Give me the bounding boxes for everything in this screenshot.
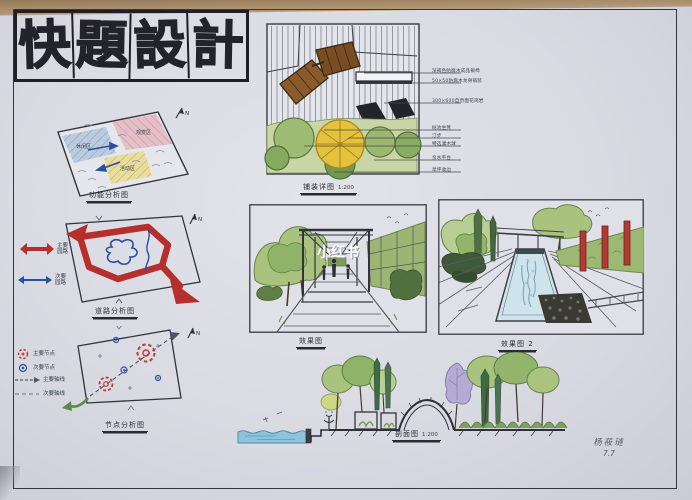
view-corridor-arrow — [62, 398, 88, 411]
title-block: 快 題 設 計 — [14, 10, 249, 82]
legend-secondary-road: 次要园路 — [18, 274, 68, 287]
svg-text:观赏区: 观赏区 — [136, 129, 151, 136]
perspective-one-caption: 效果图 — [296, 336, 326, 348]
photo-corner-shadow — [0, 466, 20, 500]
secondary-road-arrow-icon — [18, 275, 52, 285]
ground-lines — [329, 430, 565, 436]
annotation-label: 50×50防腐木龙骨铺装 — [432, 79, 482, 84]
secondary-axis-icon — [14, 390, 40, 398]
bench-plank — [356, 72, 412, 84]
main-node-markers — [100, 345, 155, 391]
signature: 杨莜琏 7.7 — [576, 436, 642, 458]
main-axis-icon — [14, 376, 40, 384]
dragonfly-marks — [263, 412, 282, 422]
annotation-label: 深褐色防腐木成品躺椅 — [432, 69, 480, 74]
annotation-label: 300×600自然面花岗岩 — [432, 99, 484, 104]
north-arrow-icon: N — [176, 108, 189, 118]
right-tree-group — [459, 352, 567, 428]
legend-main-road: 主要园路 — [20, 242, 70, 256]
function-analysis-drawing: 休闲区 观赏区 活动区 N — [48, 106, 198, 198]
pond-water — [238, 431, 306, 443]
site-boundary — [78, 330, 181, 403]
section-caption: 剖面图1:200 — [392, 429, 441, 441]
legend-secondary-axis: 次要轴线 — [14, 390, 69, 398]
watermark: 小红书 小红书 — [317, 244, 360, 262]
svg-text:N: N — [185, 111, 189, 117]
title-char-1: 快 — [16, 12, 75, 79]
annotation-label: 树池坐凳 — [432, 126, 451, 131]
annotation-label: 草坪收边 — [432, 168, 451, 173]
annotation-label: 特选灌木球 — [432, 142, 456, 147]
title-char-3: 設 — [131, 12, 190, 79]
svg-text:休闲区: 休闲区 — [76, 143, 91, 150]
node-analysis-drawing: N — [58, 326, 228, 422]
function-analysis-caption: 功能分析图 — [86, 190, 132, 202]
signature-name: 杨莜琏 — [576, 436, 642, 448]
fountain — [324, 409, 334, 429]
perspective-one-drawing: 小红书 小红书 — [249, 204, 427, 333]
left-tree-group — [321, 356, 396, 429]
perspective-two-drawing — [438, 199, 644, 335]
svg-text:活动区: 活动区 — [120, 165, 135, 172]
detail-plan-caption: 铺装详图1:200 — [300, 182, 357, 194]
node-analysis-caption: 节点分析图 — [102, 420, 148, 432]
perspective-two-caption: 效果图 2 — [498, 339, 537, 351]
main-node-icon — [16, 348, 30, 360]
secondary-node-icon — [16, 362, 30, 374]
legend-secondary-node: 次要节点 — [16, 362, 59, 374]
pond-edge-and-steps — [306, 429, 329, 443]
road-analysis-drawing: N — [52, 210, 212, 308]
svg-text:N: N — [198, 217, 202, 223]
legend-main-axis: 主要轴线 — [14, 376, 69, 384]
title-char-2: 題 — [74, 13, 132, 80]
tiny-marks — [98, 326, 160, 410]
annotation-label: 亲水平台 — [432, 156, 451, 161]
planter-frames — [355, 412, 396, 429]
legend-main-node: 主要节点 — [16, 348, 59, 360]
title-char-4: 計 — [188, 13, 246, 80]
arch-mound — [399, 397, 454, 430]
main-road-arrow-icon — [20, 242, 54, 256]
signature-date: 7.7 — [576, 449, 642, 458]
north-arrow-icon: N — [190, 214, 202, 224]
annotation-label: 汀步 — [432, 134, 442, 139]
road-analysis-caption: 道路分析图 — [92, 306, 138, 318]
svg-text:N: N — [196, 331, 200, 337]
photo-of-design-board: 快 題 設 計 — [0, 0, 692, 500]
north-arrow-icon: N — [188, 328, 200, 338]
svg-text:小红书: 小红书 — [317, 244, 359, 261]
